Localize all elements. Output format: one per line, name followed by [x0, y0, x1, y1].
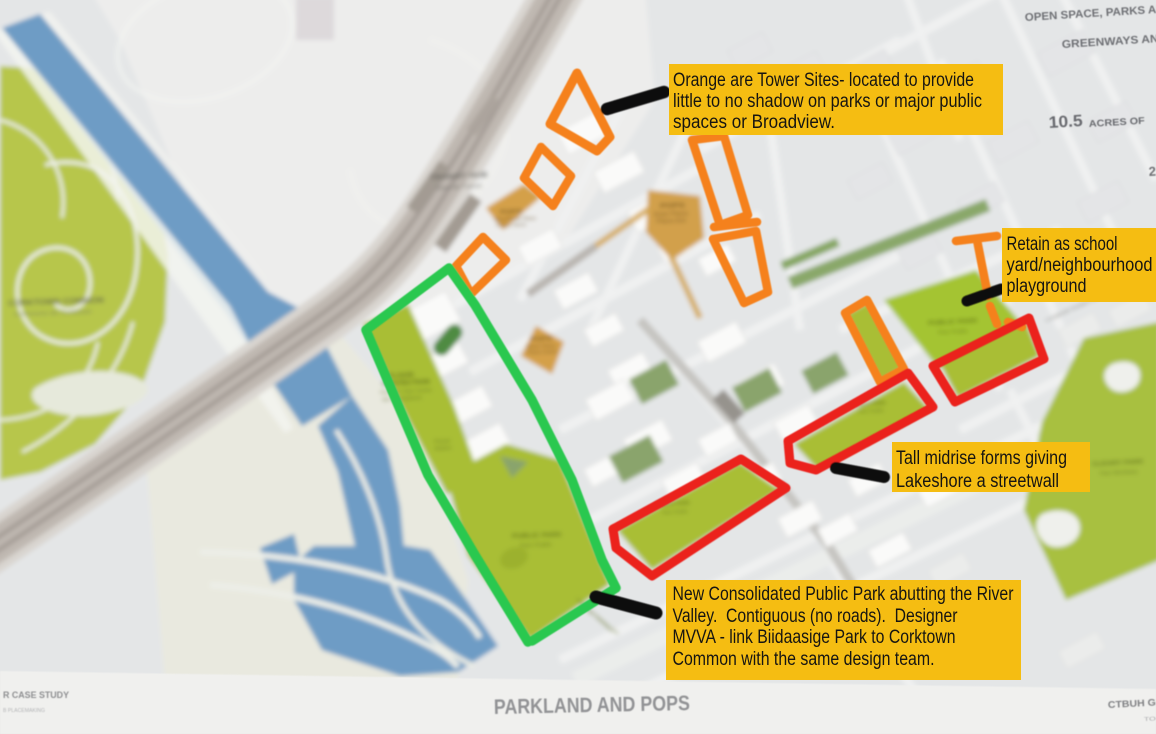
svg-text:East Plaza: East Plaza [654, 211, 689, 218]
svg-text:Retain as school: Retain as school [1007, 234, 1118, 255]
svg-text:POPS: POPS [660, 202, 686, 210]
svg-text:little to no shadow on parks o: little to no shadow on parks or major pu… [673, 91, 982, 112]
svg-text:yard/neighbourhood: yard/neighbourhood [1007, 255, 1153, 276]
svg-text:Tall midrise forms giving: Tall midrise forms giving [896, 448, 1067, 469]
svg-text:B PLACEMAKING: B PLACEMAKING [3, 708, 45, 714]
svg-text:West Plaza: West Plaza [526, 343, 557, 350]
svg-text:New Consolidated Public Park a: New Consolidated Public Park abutting th… [673, 584, 1015, 605]
svg-text:Plaza Est: Plaza Est [656, 218, 687, 225]
svg-text:Valley. Contiguous (no roads): Valley. Contiguous (no roads). Designer [673, 606, 959, 627]
svg-text:Flood: Flood [434, 438, 451, 444]
svg-text:Station: Station [434, 445, 453, 451]
svg-text:PARKLAND AND POPS: PARKLAND AND POPS [494, 692, 690, 719]
svg-text:spaces or Broadview.: spaces or Broadview. [673, 112, 835, 133]
svg-text:Lakeshore a streetwall: Lakeshore a streetwall [896, 471, 1059, 492]
svg-text:MVVA - link Biidaasige Park to: MVVA - link Biidaasige Park to Corktown [673, 627, 956, 648]
svg-text:Plaza Nord: Plaza Nord [496, 222, 527, 229]
svg-text:POPS: POPS [530, 336, 552, 343]
svg-text:playground: playground [1007, 276, 1087, 297]
svg-text:Parc Public: Parc Public [520, 542, 553, 549]
svg-text:2: 2 [1148, 164, 1156, 179]
svg-text:10.5: 10.5 [1048, 112, 1083, 132]
svg-text:R CASE STUDY: R CASE STUDY [3, 690, 69, 700]
svg-text:TO: TO [1144, 716, 1156, 723]
svg-text:Orange are Tower Sites- locate: Orange are Tower Sites- located to provi… [673, 70, 974, 91]
svg-text:Common with the same design te: Common with the same design team. [673, 649, 935, 670]
svg-text:POPS: POPS [500, 209, 522, 216]
svg-text:Plaza Ouest: Plaza Ouest [527, 349, 558, 356]
